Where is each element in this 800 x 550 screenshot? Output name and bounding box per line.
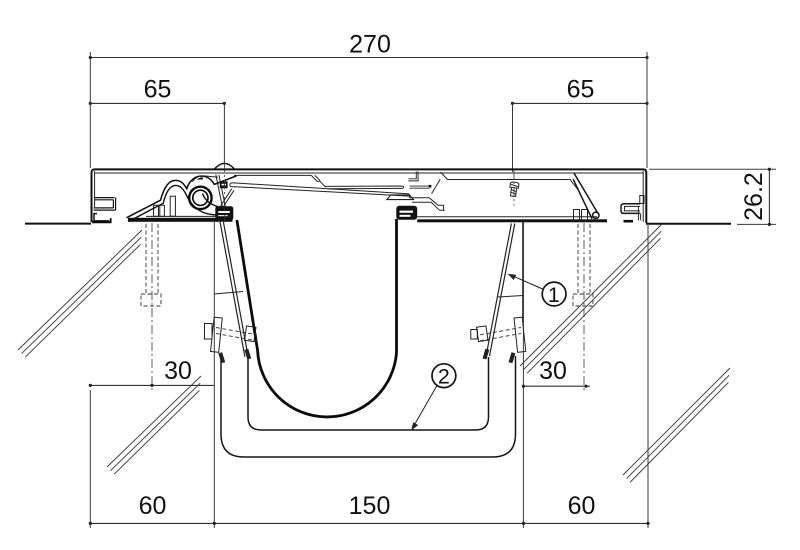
svg-text:60: 60 [568, 492, 596, 520]
svg-text:150: 150 [349, 492, 391, 520]
svg-text:65: 65 [567, 76, 595, 104]
svg-text:65: 65 [144, 76, 172, 104]
svg-text:26.2: 26.2 [740, 172, 768, 221]
svg-text:60: 60 [139, 492, 167, 520]
svg-text:30: 30 [539, 357, 567, 385]
svg-text:2: 2 [438, 365, 450, 389]
svg-text:1: 1 [548, 283, 560, 307]
svg-text:30: 30 [164, 357, 192, 385]
svg-text:270: 270 [349, 31, 391, 59]
